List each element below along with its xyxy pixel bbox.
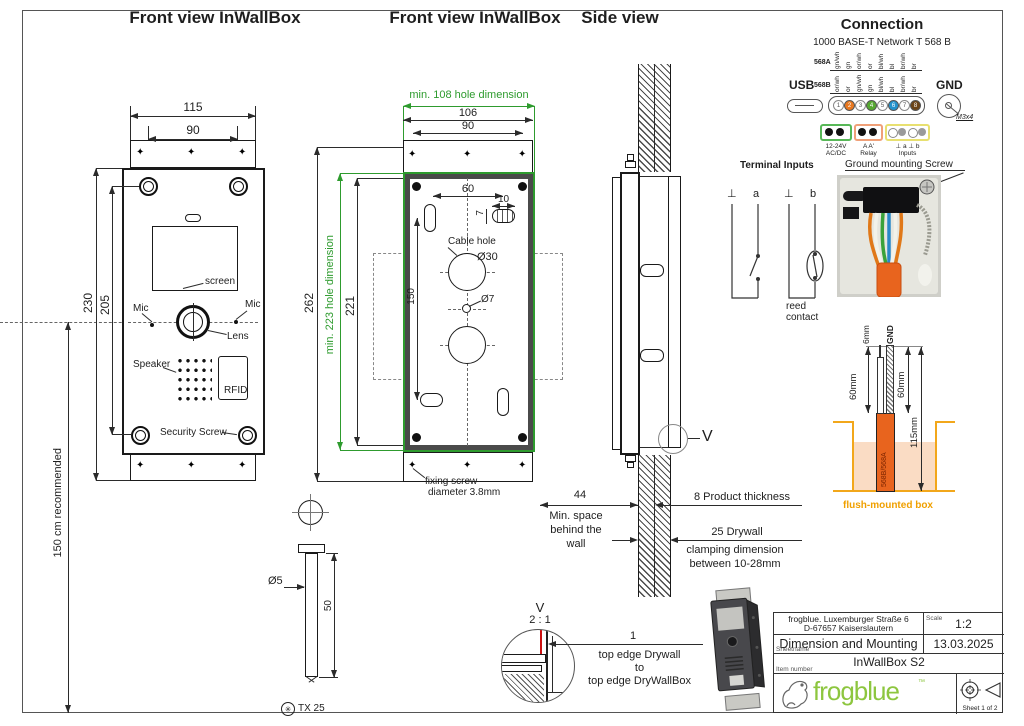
pin-2: 2 (844, 100, 855, 111)
dim-line (148, 139, 238, 140)
wall-layer-line (654, 455, 655, 597)
security-screw-top-left (139, 177, 158, 196)
brand-wordmark: frogblue (813, 677, 899, 707)
pin-5: 5 (877, 100, 888, 111)
min-space-label: behind the (532, 524, 620, 537)
dim-min-hole-width: min. 108 hole dimension (403, 89, 535, 102)
torx-icon: ✳ (281, 702, 295, 716)
dim-line (334, 553, 335, 678)
cable-type-label: 568B/568A (881, 417, 889, 487)
screw-hole-mark: ✦ (238, 148, 246, 158)
dim-205: 205 (99, 295, 113, 315)
screw-hole-mark: ✦ (518, 150, 526, 160)
lens-label: Lens (227, 331, 249, 343)
dim-7: 7 (475, 210, 487, 216)
fixing-slot (492, 209, 515, 223)
wire-label: br/wh (900, 68, 907, 92)
screw-hole-mark: ✦ (518, 461, 526, 471)
usb-port-slot (795, 105, 814, 106)
lens-crosshair (193, 303, 194, 341)
view1-title: Front view InWallBox (100, 8, 330, 28)
gnd-thread-label: M3x4 (956, 114, 973, 122)
flush-box-outline (935, 421, 937, 492)
dim-50: 50 (323, 600, 335, 611)
screw-hole-mark: ✦ (136, 148, 144, 158)
sensor-slot (185, 214, 201, 222)
trademark: ™ (918, 679, 925, 687)
mounting-bolt (627, 462, 634, 468)
gnd-symbol: ⊥ (784, 188, 794, 201)
ext-line-green (340, 450, 403, 451)
dim-115mm: 115mm (910, 402, 921, 448)
fixing-slot (420, 393, 443, 407)
security-screw-bottom-left (131, 426, 150, 445)
device-back-box (668, 176, 681, 448)
pin-6: 6 (888, 100, 899, 111)
wall-hatch (502, 674, 544, 703)
ext-line (357, 178, 403, 179)
ext-line-green (340, 173, 403, 174)
ext-line-green (534, 106, 535, 172)
screw-hole-mark: ✦ (187, 148, 195, 158)
speaker-grille (176, 356, 212, 403)
wire-label: bl/wh (878, 68, 885, 92)
gap-highlight (540, 630, 542, 656)
screw-head (298, 544, 325, 553)
dim-60mm-left: 60mm (849, 360, 860, 400)
rfid-label: RFID (224, 385, 247, 397)
terminal-inputs-label: Terminal Inputs (740, 160, 814, 172)
mounting-bolt (627, 154, 634, 161)
mic-hole-left (150, 323, 154, 327)
mounting-bolt (625, 161, 636, 168)
dim-line (868, 347, 869, 413)
drawing-date: 13.03.2025 (923, 638, 1004, 652)
bare-wire-tip (879, 345, 881, 357)
cable-hole-lower (448, 326, 486, 364)
dim-line (413, 133, 523, 134)
input-a-symbol: a (753, 188, 759, 201)
gnd-wire-label: GND (886, 316, 896, 344)
gnd-label: GND (936, 79, 963, 93)
t568b-label: 568B (814, 82, 831, 90)
wire-label: bl/wh (878, 44, 885, 69)
dim-221: 221 (344, 296, 358, 316)
screw-shaft (305, 553, 318, 677)
screw-hole-mark: ✦ (463, 150, 471, 160)
dim-mounting-height: 150 cm recommended (52, 448, 65, 557)
ext-line (866, 346, 923, 347)
title-block: frogblue. Luxemburger Straße 6 D-67657 K… (773, 612, 1003, 713)
frog-logo-icon (779, 676, 811, 712)
dim-dia5: Ø5 (268, 575, 283, 588)
fixing-slot (497, 388, 509, 416)
fixing-screw-dia-label: diameter 3.8mm (428, 487, 500, 499)
min-space-label: wall (532, 538, 620, 551)
reed-contact-label: contact (786, 312, 818, 324)
dim-90: 90 (413, 120, 523, 133)
step-line (546, 692, 568, 693)
stripped-wire (877, 357, 884, 414)
drawing-sheet: Front view InWallBox ✦ ✦ ✦ ✦ ✦ ✦ screen … (0, 0, 1024, 726)
ext-line (96, 168, 122, 169)
flush-box-label: flush-mounted box (843, 500, 933, 512)
underline (672, 540, 802, 541)
dim-60mm-right: 60mm (897, 358, 908, 398)
min-space-label: Min. space (532, 510, 620, 523)
pin-7: 7 (899, 100, 910, 111)
connection-title: Connection (822, 16, 942, 33)
detail-marker-circle (658, 424, 688, 454)
dim-line (68, 322, 69, 713)
ext-line (317, 481, 403, 482)
corner-screw (412, 433, 421, 442)
pin-1: 1 (833, 100, 844, 111)
corner-screw (412, 182, 421, 191)
corner-screw (518, 182, 527, 191)
dim-line (417, 218, 418, 400)
screw-hole-mark: ✦ (238, 461, 246, 471)
input-schematic (722, 202, 832, 302)
wire-label: gn/wh (834, 44, 841, 69)
mounting-bolt (625, 455, 636, 462)
sheetname-label: Sheetname (776, 646, 809, 653)
separator (830, 93, 922, 94)
input-b-symbol: b (810, 188, 816, 201)
detail-marker-v: V (702, 428, 713, 446)
screw-hole-mark: ✦ (187, 461, 195, 471)
wire-label: bl (889, 44, 896, 69)
dim-150: 150 (406, 288, 418, 305)
clamp (640, 264, 664, 277)
inputs-label: Inputs (885, 150, 930, 157)
wire-label: or/wh (834, 68, 841, 92)
dim-dia30: Ø30 (477, 251, 498, 264)
dim-line (663, 505, 694, 506)
gnd-braid (886, 345, 894, 414)
wire-label: gn (867, 68, 874, 92)
wire-label: br (911, 68, 918, 92)
dim-dia7: Ø7 (481, 294, 494, 306)
wire-label: br (911, 44, 918, 69)
scale-value: 1:2 (923, 618, 1004, 632)
underline (694, 505, 802, 506)
relay-label: Relay (854, 150, 883, 157)
dim-line (908, 347, 909, 413)
dim-line (540, 505, 638, 506)
screw-hole-mark: ✦ (136, 461, 144, 471)
power-label: AC/DC (820, 150, 852, 157)
product-thickness-label: 8 Product thickness (694, 491, 790, 504)
detail-v-view (501, 629, 575, 703)
view2-title: Front view InWallBox (360, 8, 590, 28)
flush-box-outline (833, 421, 853, 423)
cable-hole-label: Cable hole (448, 236, 496, 248)
screw-drive-label: TX 25 (298, 703, 325, 715)
drywall-label: clamping dimension (665, 544, 805, 557)
wire-label: or (845, 68, 852, 92)
corner-screw (518, 433, 527, 442)
reed-contact-label: reed (786, 301, 806, 313)
dim-min-hole-height: min. 223 hole dimension (324, 235, 337, 354)
item-number-label: Item number (776, 666, 813, 673)
separator (830, 70, 922, 71)
dim-line (317, 147, 318, 481)
screen-label: screen (205, 276, 235, 288)
screw-hole-mark: ✦ (408, 150, 416, 160)
usb-port-icon (787, 99, 823, 113)
sheet-number: Sheet 1 of 2 (956, 705, 1004, 712)
wall-layer-line (654, 64, 655, 172)
device-3d-render (703, 585, 775, 715)
wire-label: bl (889, 68, 896, 92)
detail-v-scale: 2 : 1 (520, 614, 560, 627)
pin-3: 3 (855, 100, 866, 111)
gnd-symbol: ⊥ (727, 188, 737, 201)
leader-line (688, 438, 700, 439)
ext-line (357, 445, 403, 446)
ext-line (96, 480, 130, 481)
dim-line (130, 116, 256, 117)
side-view-title: Side view (560, 8, 680, 28)
wire-label: or/wh (856, 44, 863, 69)
wire-label: gn/wh (856, 68, 863, 92)
security-screw-top-right (229, 177, 248, 196)
device-side-body (620, 172, 640, 455)
dim-line (556, 644, 703, 645)
wire-label: or (867, 44, 874, 69)
company-address: D-67657 Kaiserslautern (774, 624, 923, 634)
pin-4: 4 (866, 100, 877, 111)
dim-230: 230 (82, 293, 96, 313)
dim-line (96, 168, 97, 481)
t568a-label: 568A (814, 59, 831, 67)
drywall-label: 25 Drywall (672, 526, 802, 539)
edge-note: to (567, 662, 712, 675)
edge-note: top edge Drywall (567, 649, 712, 662)
ext-line (112, 186, 139, 187)
flush-box-outline (935, 421, 955, 423)
fixing-slot (424, 204, 436, 232)
fixing-screw-label: fixing screw (425, 476, 477, 488)
drywall-label: between 10-28mm (665, 558, 805, 571)
edge-note: top edge DryWallBox (567, 675, 712, 688)
projection-symbol (960, 677, 1004, 703)
installation-photo (837, 175, 941, 297)
dim-10: 10 (492, 194, 515, 206)
screw-hole-mark: ✦ (463, 461, 471, 471)
dim-262: 262 (303, 293, 317, 313)
dim-115: 115 (130, 101, 256, 115)
ground-screw-label: Ground mounting Screw (845, 159, 953, 171)
drywall-edge (501, 665, 542, 672)
dim-line (921, 347, 922, 491)
drywall-edge (501, 654, 546, 663)
flush-box-outline (852, 421, 854, 492)
dim-line-green (340, 173, 341, 450)
mic-hole-right (234, 320, 238, 324)
security-screw-label: Security Screw (160, 427, 227, 439)
underline (845, 170, 965, 171)
ext-line (317, 147, 403, 148)
part-line (640, 176, 668, 177)
dim-106: 106 (403, 107, 533, 120)
security-screw-bottom-right (238, 426, 257, 445)
dim-44: 44 (540, 489, 620, 502)
usb-label: USB (789, 79, 814, 93)
tip-length-label: 6mm (862, 316, 872, 344)
dim-90: 90 (148, 124, 238, 138)
dim-line (612, 540, 630, 541)
pin-8: 8 (910, 100, 921, 111)
center-line (310, 494, 311, 531)
dim-1: 1 (630, 630, 636, 643)
mic-label-right: Mic (245, 299, 261, 311)
wire-label: gn (845, 44, 852, 69)
wire-label: br/wh (900, 44, 907, 69)
clamp (640, 349, 664, 362)
